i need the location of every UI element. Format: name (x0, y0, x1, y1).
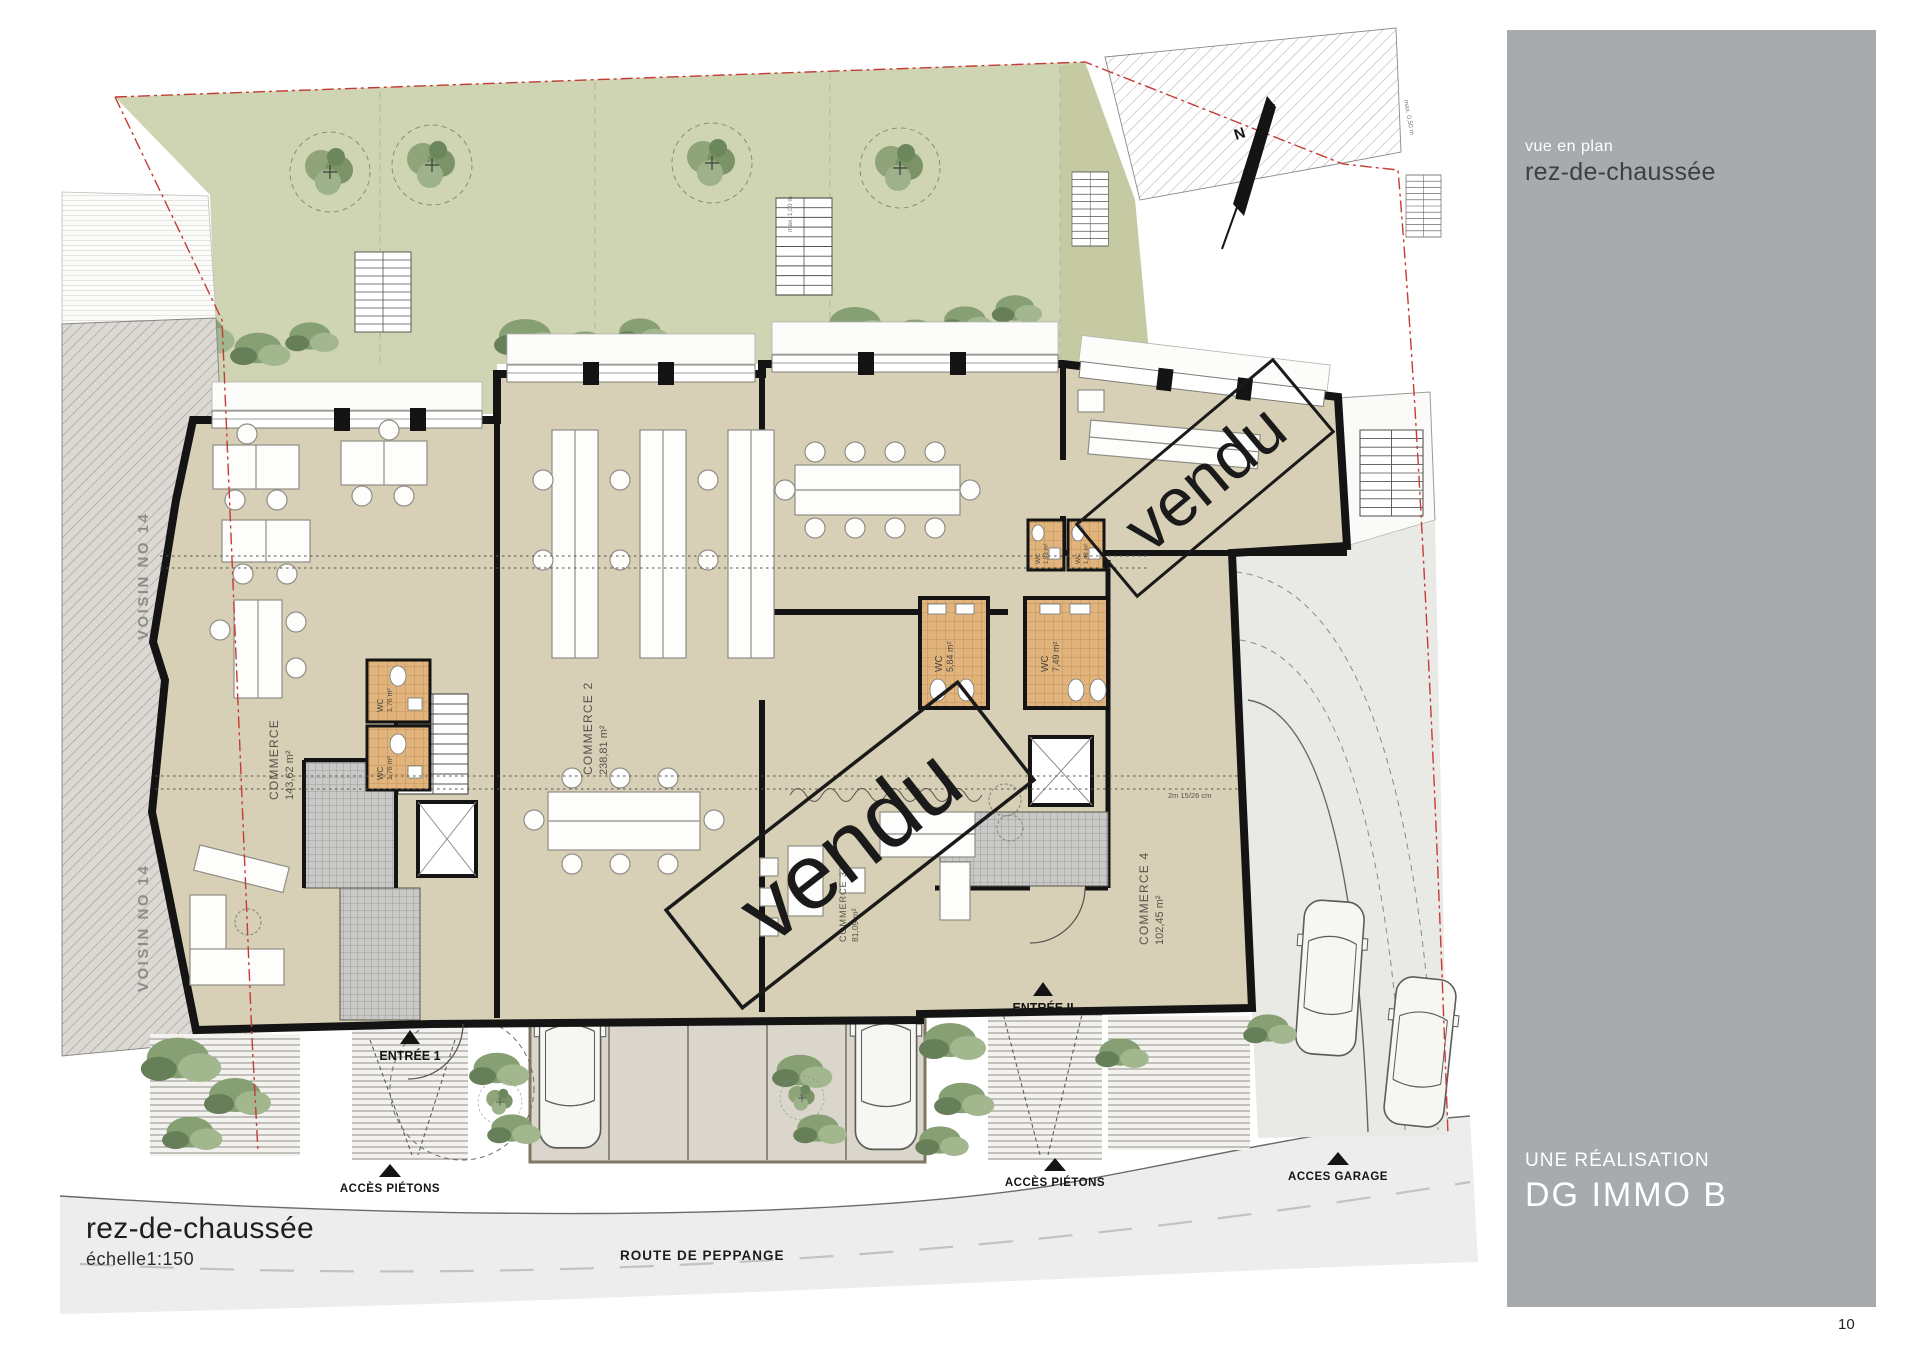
svg-text:2m 15/26 cm: 2m 15/26 cm (1168, 791, 1211, 800)
svg-text:143,62 m²: 143,62 m² (284, 750, 296, 800)
right-stairs (1360, 430, 1423, 516)
neighbour-label: VOISIN NO 14 (135, 512, 152, 640)
boundary-stairs (1406, 175, 1441, 237)
svg-text:COMMERCE 4: COMMERCE 4 (1137, 852, 1151, 945)
neighbour-label: VOISIN NO 14 (135, 864, 152, 992)
entrance-label: ENTRÉE II (1012, 1000, 1073, 1015)
svg-text:1,93 m²: 1,93 m² (1044, 544, 1050, 564)
svg-text:7,49 m²: 7,49 m² (1051, 641, 1061, 672)
svg-text:102,45 m²: 102,45 m² (1154, 895, 1166, 945)
access-label: ACCÈS PIÉTONS (340, 1182, 440, 1195)
svg-text:1,48 m²: 1,48 m² (1084, 544, 1090, 564)
page: ROUTE DE PEPPANGE VOISIN NO 14 (0, 0, 1920, 1357)
page-number: 10 (1838, 1316, 1855, 1333)
access-label: ACCÈS PIÉTONS (1005, 1176, 1105, 1189)
plan-title: rez-de-chaussée (86, 1212, 314, 1246)
svg-text:WC: WC (376, 698, 385, 712)
driveway (1232, 175, 1463, 1138)
svg-text:WC: WC (376, 766, 385, 780)
exterior-stairs (355, 252, 411, 332)
svg-text:COMMERCE: COMMERCE (267, 719, 281, 800)
sidebar-title: rez-de-chaussée (1525, 158, 1716, 187)
exterior-stairs (776, 198, 832, 295)
sidebar-footer-brand: DG IMMO B (1525, 1176, 1728, 1215)
svg-text:81,09 m²: 81,09 m² (850, 908, 860, 942)
svg-text:max. 1,00 m: max. 1,00 m (787, 196, 794, 232)
svg-text:WC: WC (1075, 553, 1082, 564)
sidebar-footer-label: UNE RÉALISATION (1525, 1150, 1728, 1172)
svg-text:238,81 m²: 238,81 m² (598, 725, 610, 775)
svg-text:max. 0,50 m: max. 0,50 m (1402, 99, 1415, 135)
access-label: ACCES GARAGE (1288, 1171, 1388, 1183)
plan-scale: échelle1:150 (86, 1249, 314, 1270)
sidebar: vue en plan rez-de-chaussée UNE RÉALISAT… (1507, 30, 1876, 1307)
entrance-label: ENTRÉE 1 (379, 1048, 440, 1063)
svg-text:COMMERCE 2: COMMERCE 2 (581, 682, 595, 775)
exterior-stairs (1072, 172, 1108, 246)
building: COMMERCE 143,62 m² COMMERCE 2 238,81 m² … (152, 322, 1347, 1079)
title-block: rez-de-chaussée échelle1:150 (86, 1212, 314, 1270)
svg-text:WC: WC (1040, 655, 1051, 672)
sidebar-subtitle: vue en plan (1525, 138, 1716, 156)
svg-text:1,76 m²: 1,76 m² (387, 756, 394, 780)
svg-text:WC: WC (934, 655, 945, 672)
road-name: ROUTE DE PEPPANGE (620, 1248, 785, 1263)
svg-text:1,76 m²: 1,76 m² (387, 688, 394, 712)
svg-text:WC: WC (1035, 553, 1042, 564)
svg-text:5,84 m²: 5,84 m² (945, 641, 955, 672)
